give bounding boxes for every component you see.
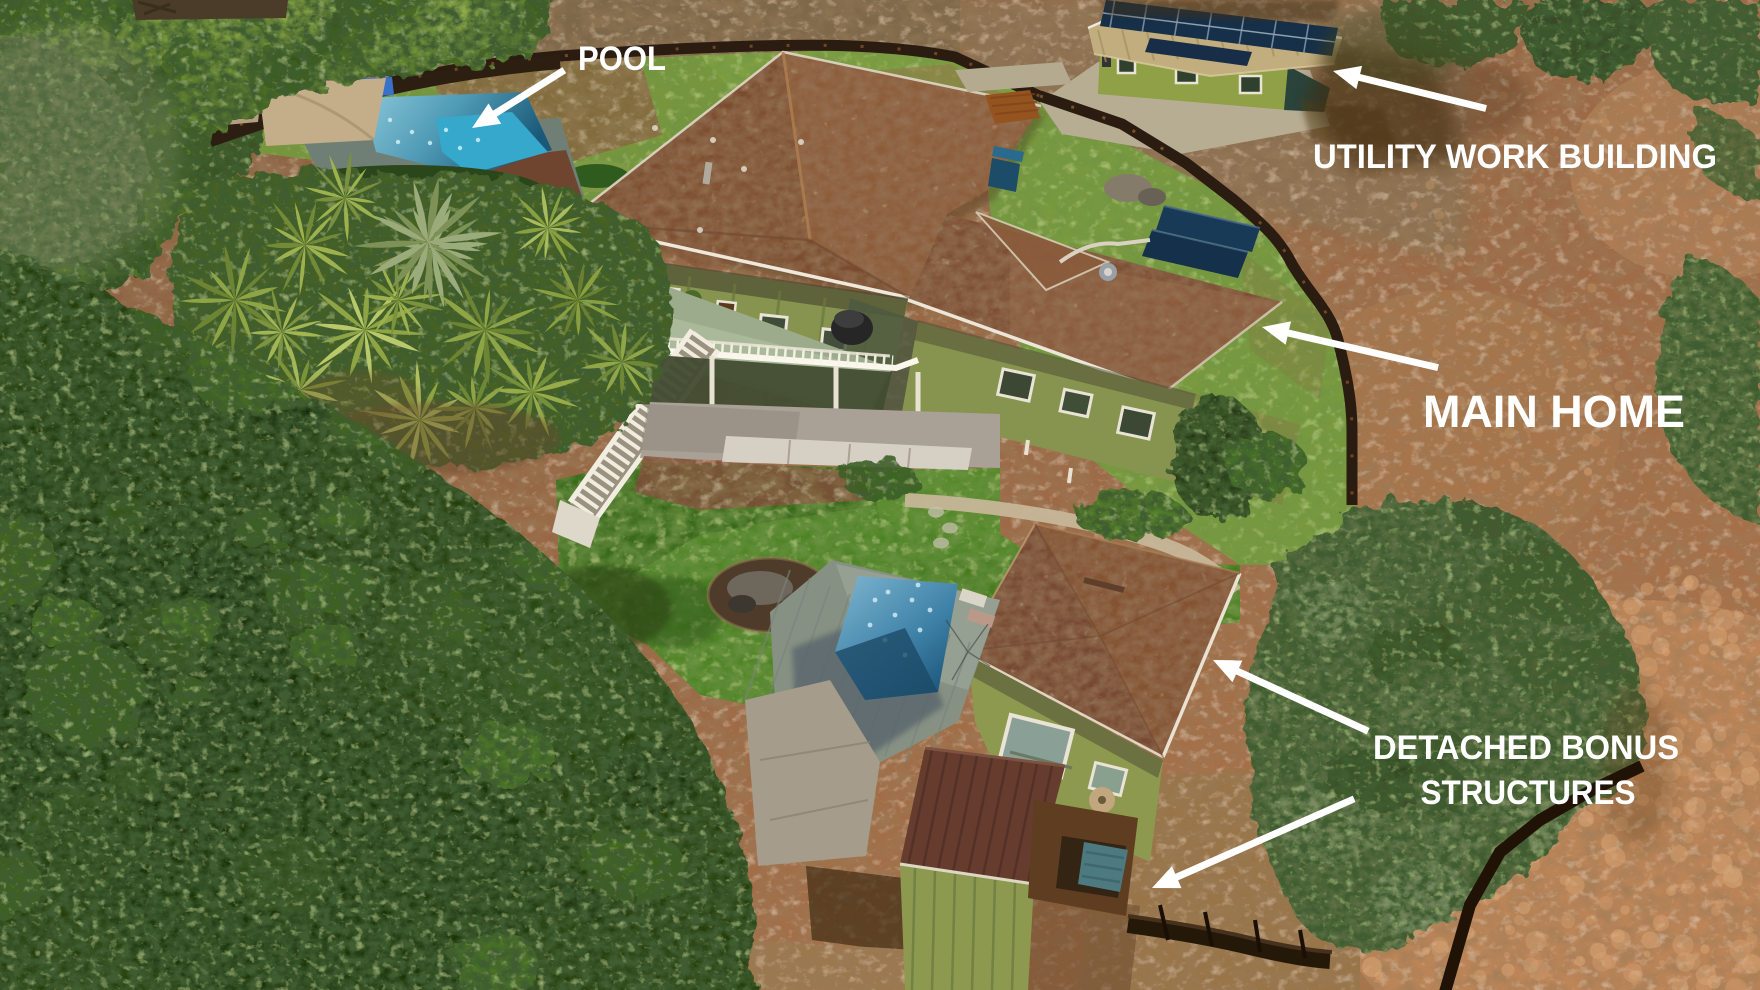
svg-text:STRUCTURES: STRUCTURES <box>1421 774 1636 812</box>
svg-text:DETACHED BONUS: DETACHED BONUS <box>1373 729 1679 767</box>
svg-text:UTILITY WORK BUILDING: UTILITY WORK BUILDING <box>1313 138 1717 176</box>
svg-text:POOL: POOL <box>578 40 666 78</box>
svg-text:MAIN HOME: MAIN HOME <box>1423 386 1685 437</box>
